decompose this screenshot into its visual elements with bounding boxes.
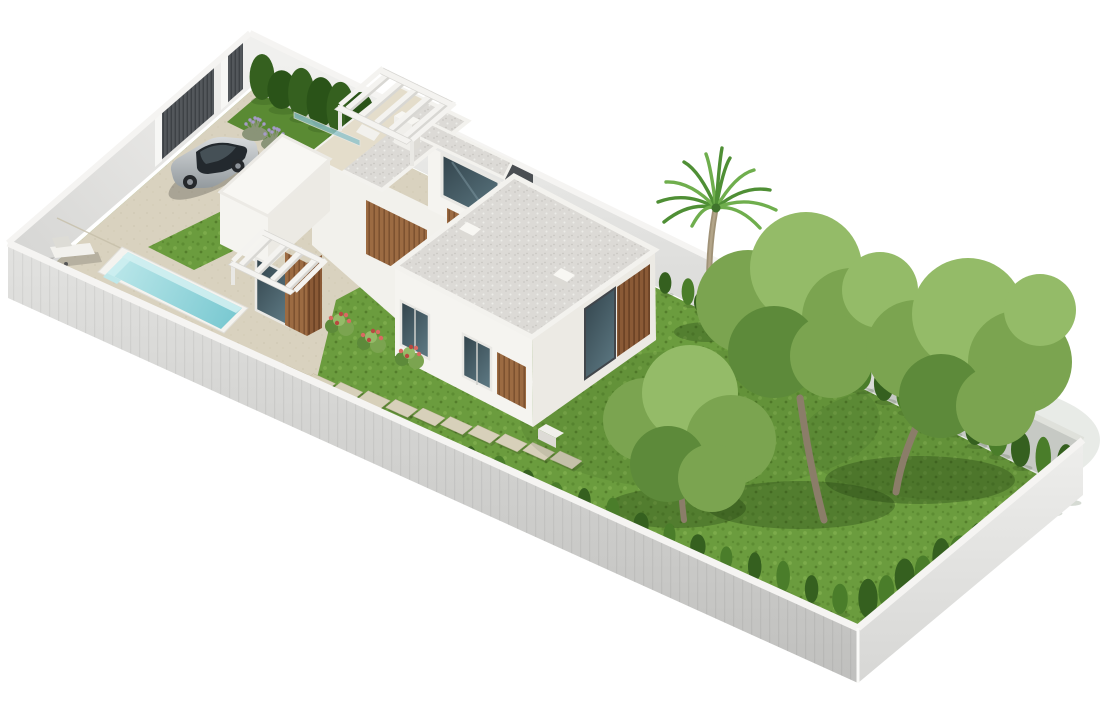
- flower-bloom: [367, 338, 371, 342]
- flower-bloom: [344, 313, 348, 317]
- flower-bloom: [376, 330, 380, 334]
- flower-bloom: [339, 312, 343, 316]
- lavender-bloom: [275, 127, 278, 130]
- flower-bloom: [361, 333, 365, 337]
- tree-shadow: [825, 456, 1015, 504]
- flower-bloom: [417, 352, 421, 356]
- flower-bloom: [329, 316, 333, 320]
- lavender-bloom: [262, 122, 265, 125]
- tree-canopy-blob: [790, 314, 874, 398]
- flower-bloom: [335, 321, 339, 325]
- flower-foliage: [365, 331, 377, 343]
- lavender-bloom: [270, 130, 273, 133]
- tree-canopy-blob: [1004, 274, 1076, 346]
- flower-bloom: [399, 349, 403, 353]
- flower-bloom: [379, 336, 383, 340]
- flower-bloom: [409, 345, 413, 349]
- tree-canopy-blob: [956, 366, 1036, 446]
- lavender-bloom: [272, 126, 275, 129]
- render-stage: [0, 0, 1102, 711]
- lavender-bloom: [253, 116, 256, 119]
- flower-bloom: [414, 346, 418, 350]
- lavender-bloom: [248, 118, 251, 121]
- car-wheel-hub: [235, 163, 241, 169]
- flower-bloom: [371, 329, 375, 333]
- lavender-bloom: [244, 122, 247, 125]
- lavender-bloom: [263, 132, 266, 135]
- flower-foliage: [403, 347, 415, 359]
- flower-foliage: [333, 314, 345, 326]
- lavender-bloom: [251, 120, 254, 123]
- lavender-bloom: [256, 117, 259, 120]
- lavender-bloom: [267, 128, 270, 131]
- palm-crown: [712, 204, 721, 213]
- car-wheel-hub: [187, 179, 193, 185]
- tree-canopy-blob: [678, 444, 746, 512]
- flower-bloom: [347, 319, 351, 323]
- flower-bloom: [405, 354, 409, 358]
- palm-frond: [716, 207, 760, 228]
- villa-isometric-render: [0, 0, 1102, 711]
